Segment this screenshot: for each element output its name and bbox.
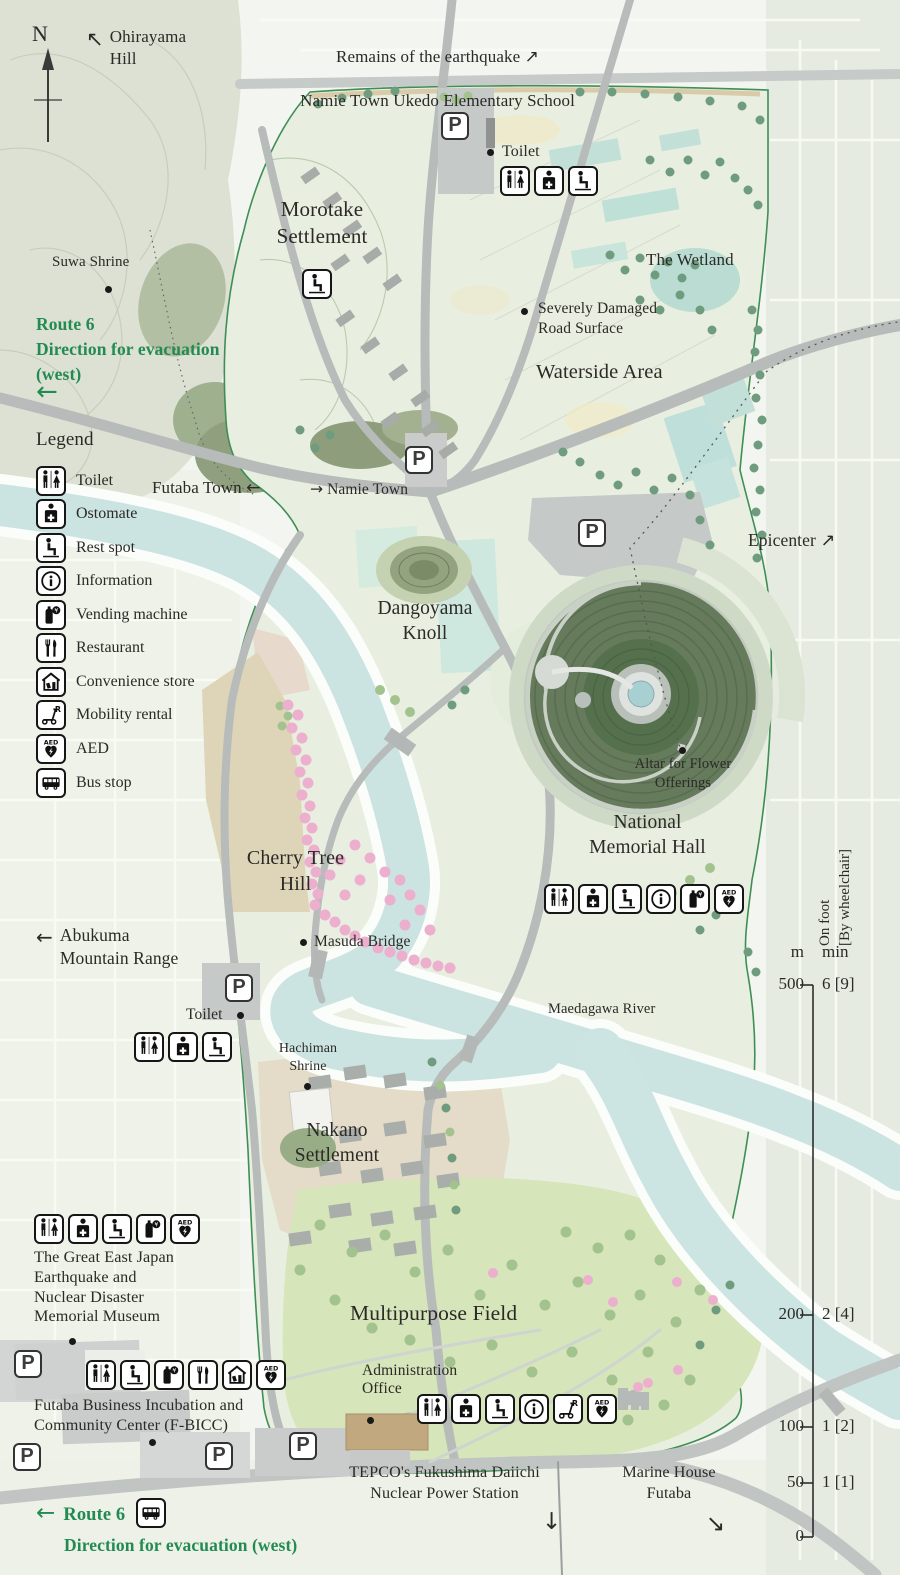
down-arrow: ↓	[542, 1508, 561, 1538]
toilet-cherry-dot	[237, 1012, 244, 1019]
memorial-hall-label: National Memorial Hall	[565, 810, 730, 861]
rest-spot-icon	[612, 884, 642, 914]
epicenter-label: Epicenter ↗	[748, 529, 835, 553]
suwa-label: Suwa Shrine	[52, 253, 129, 273]
information-icon	[36, 566, 66, 596]
scale-m-100: 100	[756, 1416, 804, 1436]
up-right-arrow: ↗	[525, 47, 539, 67]
rest-spot-icon	[568, 166, 598, 196]
legend-item-ostomate: Ostomate	[36, 499, 137, 529]
scale-unit-m: m	[756, 942, 804, 962]
scale-min-200: 2 [4]	[822, 1304, 855, 1324]
rest-spot-icon	[120, 1360, 150, 1390]
aed-icon: AED	[587, 1394, 617, 1424]
toilet-icon	[500, 166, 530, 196]
mobility-rental-icon: R	[36, 700, 66, 730]
scale-min-100: 1 [2]	[822, 1416, 855, 1436]
museum-icons: ¥AED	[34, 1214, 200, 1244]
mobility-icon: R	[553, 1394, 583, 1424]
altar-dot	[679, 747, 686, 754]
svg-text:AED: AED	[722, 888, 737, 896]
fbicc-label: Futaba Business Incubation and Community…	[34, 1395, 243, 1436]
parking-icon: P	[578, 519, 606, 547]
legend-item-information: Information	[36, 566, 152, 596]
restaurant-icon	[36, 633, 66, 663]
legend-item-aed: AEDAED	[36, 734, 109, 764]
ostomate-icon	[451, 1394, 481, 1424]
right-arrow: →	[310, 480, 323, 498]
hachiman-dot	[304, 1083, 311, 1090]
masuda-bridge-label: Masuda Bridge	[314, 932, 410, 952]
scale-unit-min: min	[822, 942, 848, 962]
parking-icon: P	[405, 446, 433, 474]
ostomate-icon	[534, 166, 564, 196]
rest-spot-icon	[102, 1214, 132, 1244]
parking-icon: P	[289, 1432, 317, 1460]
parking-icon: P	[205, 1442, 233, 1470]
rest-spot-icon	[36, 533, 66, 563]
ostomate-icon	[68, 1214, 98, 1244]
vending-icon: ¥	[136, 1214, 166, 1244]
restaurant-icon	[188, 1360, 218, 1390]
scale-m-50: 50	[756, 1472, 804, 1492]
ostomate-icon	[36, 499, 66, 529]
parking-icon: P	[14, 1350, 42, 1378]
cherry-toilet-icons	[134, 1032, 232, 1062]
svg-text:¥: ¥	[172, 1367, 176, 1374]
legend-item-toilet: Toilet	[36, 466, 113, 496]
legend-title: Legend	[36, 428, 94, 453]
nakano-label: Nakano Settlement	[272, 1118, 402, 1169]
compass-north-label: N	[32, 20, 48, 49]
aed-icon: AED	[256, 1360, 286, 1390]
morotake-rest-icon	[302, 269, 332, 299]
route6-top-label: Route 6 Direction for evacuation (west)	[36, 312, 220, 387]
toilet-north-dot	[487, 149, 494, 156]
on-foot-note: On foot [By wheelchair]	[816, 810, 860, 946]
fbicc-dot	[149, 1439, 156, 1446]
vending-machine-icon: ¥	[36, 600, 66, 630]
parking-icon: P	[13, 1443, 41, 1471]
suwa-dot	[105, 286, 112, 293]
dangoyama-label: Dangoyama Knoll	[355, 596, 495, 647]
waterside-label: Waterside Area	[536, 359, 663, 386]
masuda-dot	[300, 939, 307, 946]
toilet-icon	[134, 1032, 164, 1062]
legend-item-vending: ¥Vending machine	[36, 600, 188, 630]
abukuma-label: ← Abukuma Mountain Range	[36, 924, 178, 970]
scale-m-500: 500	[756, 974, 804, 994]
toilet-icon	[544, 884, 574, 914]
rest-spot-icon	[302, 269, 332, 299]
toilet-north-label: Toilet	[502, 142, 540, 163]
route6-bottom-label2: Direction for evacuation (west)	[64, 1534, 297, 1557]
up-left-arrow: ↖	[86, 26, 104, 70]
admin-dot	[367, 1417, 374, 1424]
toilet-icon	[34, 1214, 64, 1244]
severely-damaged-label: Severely Damaged Road Surface	[538, 299, 657, 339]
rest-spot-icon	[202, 1032, 232, 1062]
svg-text:AED: AED	[178, 1218, 193, 1226]
futaba-town-label: Futaba Town ←	[152, 477, 261, 499]
scale-min-500: 6 [9]	[822, 974, 855, 994]
svg-text:¥: ¥	[54, 607, 58, 614]
legend-item-convenience: Convenience store	[36, 667, 195, 697]
aed-icon: AED	[36, 734, 66, 764]
down-right-arrow: ↘	[706, 1510, 725, 1540]
legend-item-rest-spot: Rest spot	[36, 533, 135, 563]
map-artwork	[0, 0, 900, 1575]
multipurpose-label: Multipurpose Field	[350, 1300, 517, 1328]
wetland-label: The Wetland	[646, 249, 734, 271]
tepco-label: TEPCO's Fukushima Daiichi Nuclear Power …	[322, 1462, 567, 1504]
admin-icons: RAED	[417, 1394, 617, 1424]
up-right-arrow: ↗	[820, 531, 835, 551]
dangoyama-knoll	[376, 536, 472, 604]
svg-text:AED: AED	[595, 1398, 610, 1406]
aed-icon: AED	[170, 1214, 200, 1244]
marine-house-label: Marine House Futaba	[608, 1462, 730, 1504]
toilet-icon	[417, 1394, 447, 1424]
convenience-icon	[222, 1360, 252, 1390]
hachiman-shrine-label: Hachiman Shrine	[272, 1040, 344, 1076]
legend-item-restaurant: Restaurant	[36, 633, 144, 663]
toilet-cherry-label: Toilet	[186, 1005, 223, 1025]
museum-label: The Great East Japan Earthquake and Nucl…	[34, 1248, 174, 1327]
ostomate-icon	[578, 884, 608, 914]
bus-stop-icon	[36, 768, 66, 798]
toilet-icon	[86, 1360, 116, 1390]
left-arrow: ←	[246, 478, 260, 498]
route6-top-arrow: ←	[36, 376, 58, 410]
legend-item-mobility: RMobility rental	[36, 700, 172, 730]
rest-spot-icon	[485, 1394, 515, 1424]
severely-damaged-dot	[521, 308, 528, 315]
parking-icon: P	[441, 112, 469, 140]
remains-label: Remains of the earthquake ↗ Namie Town U…	[255, 24, 620, 134]
svg-text:AED: AED	[44, 738, 59, 746]
park-map: N ↖ Ohirayama Hill Remains of the earthq…	[0, 0, 900, 1575]
museum-dot	[69, 1338, 76, 1345]
information-icon	[519, 1394, 549, 1424]
ostomate-icon	[168, 1032, 198, 1062]
route6-bottom-label: ← Route 6	[36, 1499, 125, 1529]
toilet-icon	[36, 466, 66, 496]
aed-icon: AED	[714, 884, 744, 914]
convenience-store-icon	[36, 667, 66, 697]
north-toilet-icons	[500, 166, 598, 196]
left-arrow: ←	[36, 1499, 55, 1529]
bus-icon	[136, 1498, 166, 1528]
vending-icon: ¥	[680, 884, 710, 914]
parking-icon: P	[225, 974, 253, 1002]
cherry-tree-hill-label: Cherry Tree Hill	[228, 845, 363, 897]
memorial-hall-icons: ¥AED	[544, 884, 744, 914]
left-arrow: ←	[36, 924, 53, 970]
route6-bus-icon	[136, 1498, 166, 1528]
svg-text:AED: AED	[264, 1364, 279, 1372]
scale-m-0: 0	[756, 1526, 804, 1546]
svg-text:¥: ¥	[698, 891, 702, 898]
ohirayama-label: ↖ Ohirayama Hill	[86, 26, 205, 70]
svg-text:¥: ¥	[154, 1221, 158, 1228]
fbicc-icons: ¥AED	[86, 1360, 286, 1390]
maedagawa-label: Maedagawa River	[548, 1000, 655, 1019]
scale-min-50: 1 [1]	[822, 1472, 855, 1492]
altar-label: Altar for Flower Offerings	[613, 755, 753, 793]
information-icon	[646, 884, 676, 914]
legend-item-bus: Bus stop	[36, 768, 132, 798]
morotake-label: Morotake Settlement	[252, 196, 392, 251]
namie-town-label: → Namie Town	[310, 479, 408, 500]
scale-m-200: 200	[756, 1304, 804, 1324]
vending-icon: ¥	[154, 1360, 184, 1390]
